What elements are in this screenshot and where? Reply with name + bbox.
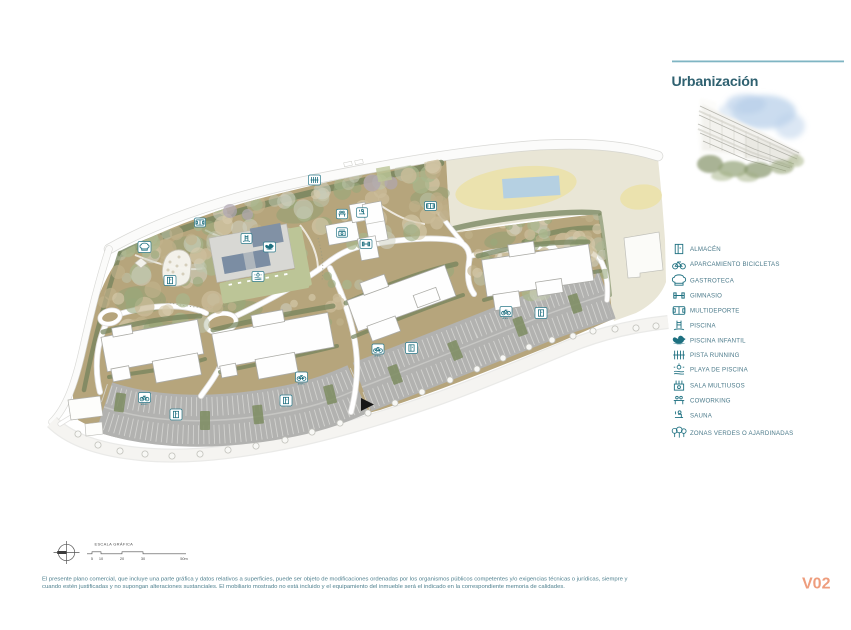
svg-text:cuando estén justificadas y no: cuando estén justificadas y no supongan … (42, 584, 565, 590)
svg-text:GASTROTECA: GASTROTECA (690, 278, 735, 285)
svg-text:El presente plano comercial, q: El presente plano comercial, que incluye… (42, 577, 628, 583)
svg-text:ALMACÉN: ALMACÉN (690, 246, 721, 253)
svg-text:APARC.: APARC. (374, 355, 382, 358)
svg-text:PISCINA: PISCINA (690, 323, 717, 330)
svg-text:Urbanización: Urbanización (672, 74, 759, 90)
svg-text:COWORKING: COWORKING (690, 398, 731, 405)
svg-text:ESCALA GRÁFICA: ESCALA GRÁFICA (95, 542, 134, 547)
svg-text:V02: V02 (802, 576, 831, 593)
svg-text:APARC.: APARC. (502, 317, 510, 320)
svg-text:APARCAMIENTO BICICLETAS: APARCAMIENTO BICICLETAS (690, 261, 780, 268)
svg-text:GIMNASIO: GIMNASIO (690, 293, 722, 300)
svg-text:5: 5 (91, 556, 93, 561)
svg-text:50m: 50m (180, 556, 188, 561)
svg-text:MULTIDEPORTE: MULTIDEPORTE (690, 308, 740, 315)
svg-text:PISTA RUNNING: PISTA RUNNING (690, 352, 740, 359)
svg-text:PISCINA INFANTIL: PISCINA INFANTIL (690, 338, 746, 345)
svg-text:APARC.: APARC. (141, 403, 149, 406)
svg-text:ZONAS VERDES O AJARDINADAS: ZONAS VERDES O AJARDINADAS (690, 430, 793, 437)
svg-text:SALA MULTIUSOS: SALA MULTIUSOS (690, 383, 745, 390)
svg-text:PLAYA DE PISCINA: PLAYA DE PISCINA (690, 367, 749, 374)
svg-text:APARC.: APARC. (298, 383, 306, 386)
svg-text:SAUNA: SAUNA (690, 413, 713, 420)
